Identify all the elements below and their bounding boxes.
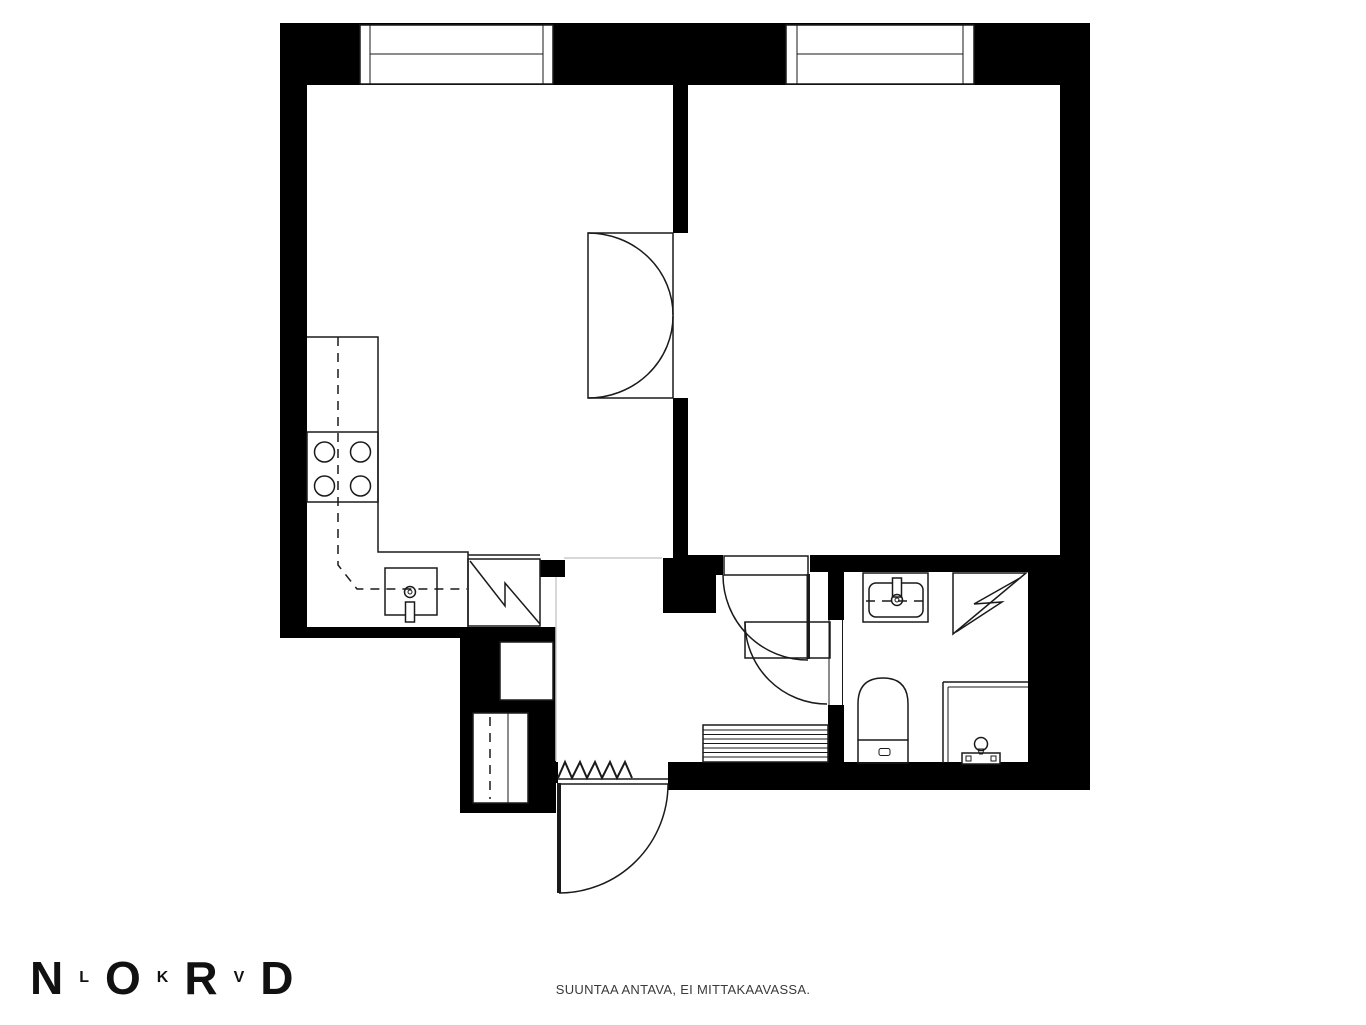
disclaimer-text: SUUNTAA ANTAVA, EI MITTAKAAVASSA. — [556, 982, 811, 997]
door-swing-arc-top — [588, 233, 673, 315]
logo-letter: R — [184, 955, 217, 1001]
door-swing-arc — [559, 784, 668, 893]
doormat-zigzag — [558, 762, 632, 778]
upper-cabinet-dashed — [338, 337, 467, 589]
counter-outline — [307, 337, 468, 627]
logo-letter: N — [30, 955, 63, 1001]
door-opening — [671, 233, 690, 398]
toilet — [858, 678, 908, 763]
door-swing-arc — [745, 622, 827, 704]
door-leaves-box — [588, 233, 673, 398]
door-swing-arc-bottom — [588, 316, 673, 398]
logo-letter: D — [260, 955, 293, 1001]
shower-enclosure — [943, 682, 1028, 764]
refrigerator — [468, 555, 540, 626]
wall-divider-upper — [673, 84, 688, 233]
stove-burner — [351, 476, 371, 496]
wall-kitchen-south — [280, 627, 470, 638]
window-left — [360, 25, 553, 84]
sink-faucet — [405, 587, 416, 598]
door-leaf-closed — [724, 556, 808, 575]
refrigerator-box — [468, 559, 540, 626]
wall-bottom — [668, 762, 1090, 790]
wall-room-south — [810, 555, 1060, 572]
wall-divider-lower — [673, 398, 688, 560]
wall-bath-right — [1028, 572, 1060, 790]
double-door — [588, 233, 690, 398]
door-leaf-open — [807, 574, 811, 659]
shower-corner — [953, 573, 1026, 634]
logo-letter-small: L — [79, 970, 89, 986]
shaft-niche — [473, 713, 528, 803]
bathroom-door — [745, 620, 844, 705]
brand-logo: N L O K R V D — [30, 952, 294, 1004]
toilet-flush-button — [879, 749, 890, 756]
logo-letter: O — [105, 955, 141, 1001]
wall-bath-left-lower — [828, 705, 844, 763]
toilet-tank — [858, 740, 908, 763]
door-leaf — [745, 622, 830, 658]
floorplan-page: N L O K R V D SUUNTAA ANTAVA, EI MITTAKA… — [0, 0, 1366, 1025]
door-leaf — [557, 783, 561, 893]
shower-mixer — [962, 738, 1000, 765]
wall-kitchen-stub — [540, 560, 565, 577]
sink-faucet-handle — [406, 602, 415, 622]
stove — [307, 432, 378, 502]
stove-burner — [351, 442, 371, 462]
wall-left — [280, 23, 307, 638]
stove-burner — [315, 442, 335, 462]
room-door — [723, 553, 810, 660]
entrance-door — [557, 762, 668, 893]
sink-faucet-dot — [408, 590, 412, 594]
logo-letter-small: K — [157, 970, 169, 986]
washbasin — [863, 573, 928, 622]
logo-letter-small: V — [234, 970, 245, 986]
stove-burner — [315, 476, 335, 496]
kitchen-counter — [307, 337, 468, 627]
toilet-bowl — [858, 678, 908, 740]
walls — [280, 23, 1090, 813]
floor-plan — [0, 0, 1366, 1025]
refrigerator-symbol — [470, 561, 540, 624]
shaft-niche — [500, 642, 553, 700]
door-swing-arc — [723, 575, 808, 660]
wall-hall-north — [688, 555, 723, 575]
window-right — [786, 25, 974, 84]
wall-bath-left-upper — [828, 572, 844, 620]
wall-right — [1060, 23, 1090, 790]
radiator — [703, 725, 828, 762]
